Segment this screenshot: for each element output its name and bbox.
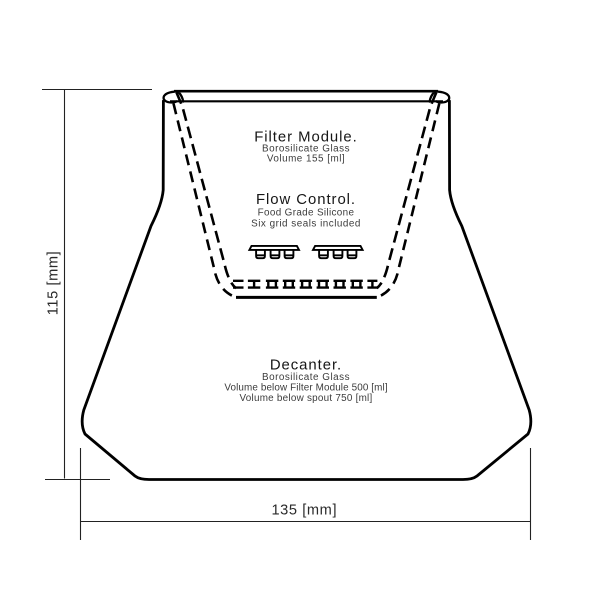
svg-text:Food Grade Silicone: Food Grade Silicone	[258, 208, 355, 219]
svg-text:Volume below spout 750 [ml]: Volume below spout 750 [ml]	[239, 393, 372, 404]
svg-text:115 [mm]: 115 [mm]	[46, 251, 62, 316]
svg-text:Volume 155 [ml]: Volume 155 [ml]	[267, 154, 345, 165]
svg-text:135 [mm]: 135 [mm]	[271, 503, 337, 519]
svg-text:Borosilicate Glass: Borosilicate Glass	[262, 372, 350, 383]
svg-text:Flow Control.: Flow Control.	[256, 192, 356, 208]
svg-text:Six grid seals included: Six grid seals included	[251, 219, 361, 230]
svg-text:Volume below Filter Module 500: Volume below Filter Module 500 [ml]	[224, 383, 388, 394]
